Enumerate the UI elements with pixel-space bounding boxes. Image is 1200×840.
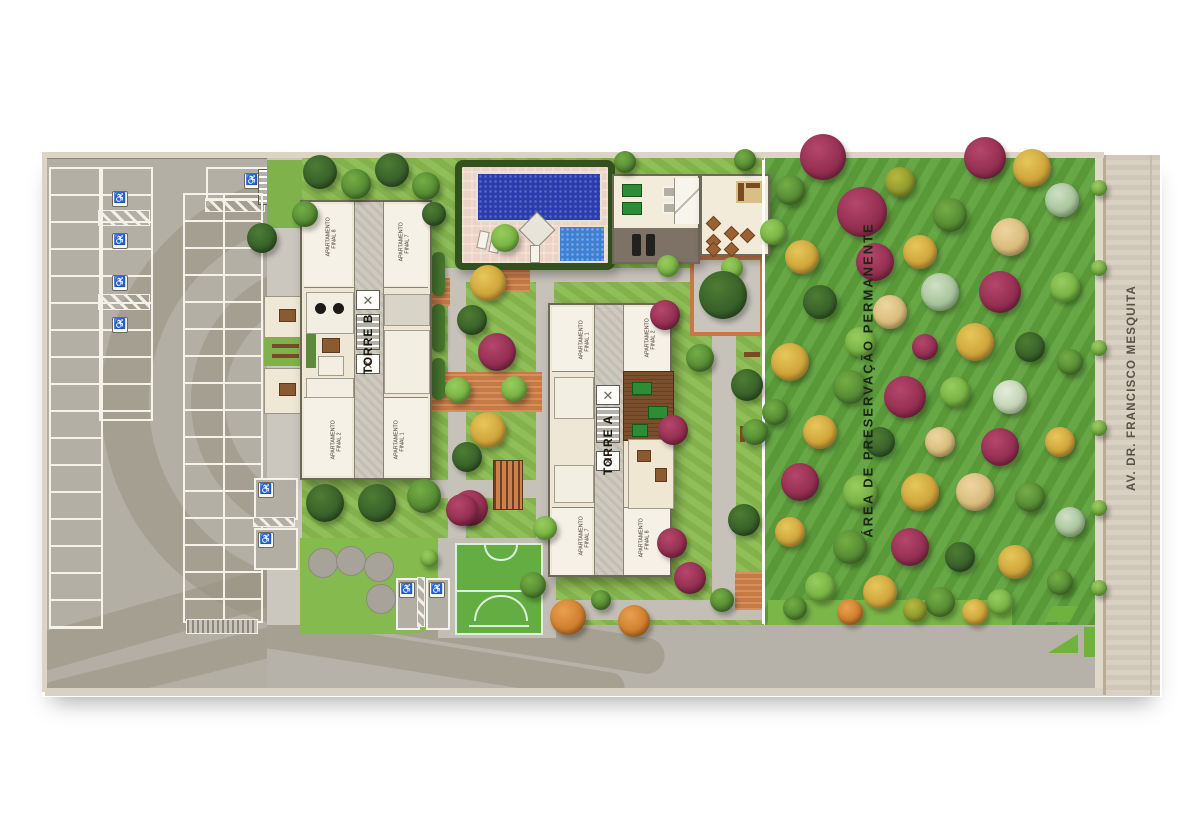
terrace — [384, 294, 430, 326]
street-curb — [1103, 155, 1106, 695]
unit-label: APARTAMENTO FINAL 7 — [398, 227, 410, 262]
unit-label: APARTAMENTO FINAL 2 — [644, 323, 656, 358]
court-goal-arc — [474, 595, 528, 621]
pool-area — [455, 160, 615, 270]
site-wall-top — [42, 152, 1104, 158]
island-divider — [223, 195, 225, 621]
pool-table — [622, 202, 642, 215]
clubhouse — [612, 170, 770, 266]
unit-label: APARTAMENTO FINAL 2 — [330, 425, 342, 460]
pool-table — [648, 406, 668, 419]
elevator-icon: ✕ — [596, 385, 620, 405]
round-table — [315, 303, 326, 314]
access-road — [267, 625, 1103, 688]
parking-island — [183, 193, 263, 623]
gourmet-space — [306, 292, 354, 334]
site-wall-left — [42, 152, 47, 692]
garden-plaza — [690, 256, 764, 336]
street-name-label: AV. DR. FRANCISCO MESQUITA — [1126, 285, 1138, 491]
treadmill — [632, 234, 641, 256]
accessible-parking-icon: ♿ — [258, 532, 274, 548]
common-room — [554, 377, 594, 419]
soccer-court — [455, 543, 543, 635]
boundary-fence — [762, 160, 765, 624]
planter — [306, 334, 316, 368]
concrete-pad — [364, 552, 394, 582]
pool-lounger — [476, 230, 490, 250]
bench — [272, 344, 299, 348]
roof-section — [674, 178, 699, 224]
gourmet-terrace — [628, 439, 674, 509]
table — [322, 338, 340, 353]
treadmill — [646, 234, 655, 256]
hedge — [432, 304, 445, 352]
pool-lounger — [488, 234, 502, 254]
table — [637, 450, 651, 462]
unit-label: APARTAMENTO FINAL 7 — [578, 521, 590, 556]
preservation-area — [765, 158, 1095, 625]
dining-table — [724, 242, 740, 258]
accessible-parking-icon: ♿ — [112, 275, 128, 291]
dining-table — [706, 216, 722, 232]
pergola — [493, 460, 523, 510]
accessible-stalls: ♿ ♿ — [254, 478, 294, 566]
no-parking-hatch — [99, 211, 149, 225]
preservation-area-label: ÁREA DE PRESERVAÇÃO PERMANENTE — [861, 222, 876, 537]
coworking-room — [306, 378, 354, 398]
parking-lot: ♿ ♿ ♿ ♿ ♿ ✕ — [45, 158, 269, 690]
pool-table — [632, 382, 652, 395]
garden-path — [712, 335, 736, 608]
accessible-parking-icon: ♿ — [429, 582, 445, 598]
hedge — [432, 252, 445, 296]
accessible-parking-icon: ♿ — [112, 233, 128, 249]
wood-deck — [623, 371, 674, 441]
sofa — [746, 183, 760, 188]
terracotta-patio — [430, 372, 542, 412]
hedge — [432, 358, 445, 400]
lounge-room — [384, 330, 430, 394]
dining-table — [724, 226, 740, 242]
gym-floor — [614, 228, 698, 262]
no-parking-hatch — [254, 518, 294, 526]
elevator-icon: ✕ — [356, 290, 380, 310]
tower-a-label: TORRE A — [601, 415, 615, 475]
kids-pool — [558, 225, 606, 263]
bench — [744, 352, 760, 357]
curb-sidewalk — [45, 688, 1160, 696]
lawn-strip — [267, 160, 302, 228]
bench — [272, 354, 299, 358]
terracotta-patio — [735, 572, 763, 610]
sofa — [738, 183, 744, 201]
court-center-line — [457, 590, 541, 592]
concrete-pad — [336, 546, 366, 576]
tower-b: ✕ ✕ APARTAMENTO FINAL 8 APARTAMENTO FINA… — [300, 200, 432, 480]
unit-label: APARTAMENTO FINAL 1 — [393, 425, 405, 460]
bench — [740, 426, 745, 442]
unit-label: APARTAMENTO FINAL 8 — [325, 222, 337, 257]
meeting-table — [318, 356, 344, 376]
accessible-parking-icon: ♿ — [399, 582, 415, 598]
picnic-table — [279, 383, 296, 396]
table — [655, 468, 667, 482]
no-parking-hatch — [99, 295, 149, 309]
tower-b-label: TORRE B — [361, 314, 375, 375]
accessible-stalls: ♿ ♿ — [396, 578, 448, 628]
parking-stall-column — [49, 167, 103, 629]
pool-table — [632, 424, 648, 437]
unit-label: APARTAMENTO FINAL 1 — [578, 325, 590, 360]
concrete-pad — [308, 548, 338, 578]
tower-a: ✕ ✕ APARTAMENTO FINAL 1 APARTAMENTO FINA… — [548, 303, 672, 577]
lawn-strip — [768, 600, 1012, 625]
lawn-wedge — [1084, 627, 1095, 657]
garden-path — [430, 268, 694, 282]
pool-lounger — [530, 245, 540, 263]
pool-table — [622, 184, 642, 197]
common-room — [554, 465, 594, 503]
games-gym-building — [612, 174, 700, 264]
picnic-table — [279, 309, 296, 322]
court-goal-arc — [484, 545, 518, 561]
accessible-parking-icon: ♿ — [112, 191, 128, 207]
apartment-unit — [304, 398, 352, 476]
dining-table — [740, 228, 756, 244]
unit-label: APARTAMENTO FINAL 8 — [638, 523, 650, 558]
street-lane-line — [1150, 155, 1152, 695]
no-parking-hatch — [418, 578, 424, 626]
party-hall — [700, 174, 770, 256]
pedestrian-crossing — [186, 619, 258, 634]
round-table — [333, 303, 344, 314]
accessible-parking-icon: ♿ — [112, 317, 128, 333]
site-plan: ♿ ♿ ♿ ♿ ♿ ✕ — [0, 0, 1200, 840]
concrete-pad — [366, 584, 396, 614]
court-line — [469, 625, 529, 627]
accessible-parking-icon: ♿ — [258, 482, 274, 498]
